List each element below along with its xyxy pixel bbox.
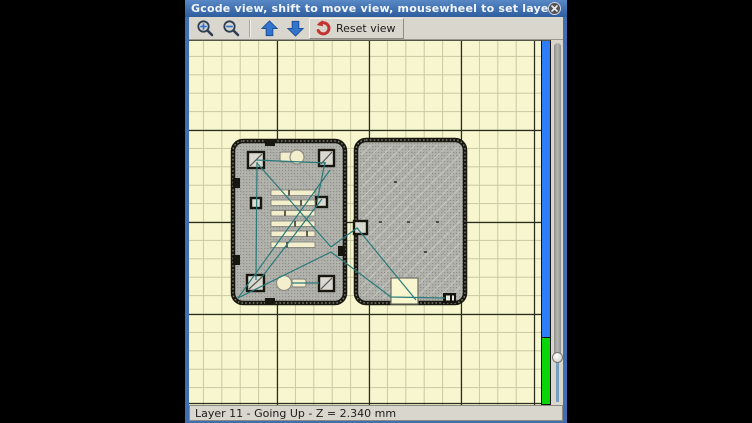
corner-hole xyxy=(319,150,334,166)
magnifier-plus-icon xyxy=(196,19,215,38)
blue-arrow-down-icon xyxy=(286,19,305,38)
layer-progress-done xyxy=(542,337,550,404)
gcode-viewer-window: Gcode view, shift to move view, mousewhe… xyxy=(185,0,567,423)
red-undo-arrow-icon xyxy=(314,19,332,37)
right-part xyxy=(354,140,465,304)
close-button[interactable] xyxy=(548,2,561,15)
close-icon xyxy=(550,4,559,13)
layer-progress-bar[interactable] xyxy=(541,40,551,405)
status-bar: Layer 11 - Going Up - Z = 2.340 mm xyxy=(189,405,563,421)
magnifier-minus-icon xyxy=(222,19,241,38)
zoom-in-button[interactable] xyxy=(193,18,217,39)
bottom-notch xyxy=(391,278,418,304)
gcode-canvas[interactable] xyxy=(189,40,541,405)
left-part xyxy=(233,139,345,305)
reset-view-label: Reset view xyxy=(336,22,396,35)
toolbar-separator xyxy=(249,20,251,37)
zoom-out-button[interactable] xyxy=(219,18,243,39)
layer-down-button[interactable] xyxy=(283,18,307,39)
blue-arrow-up-icon xyxy=(260,19,279,38)
slider-track-lower[interactable] xyxy=(556,358,559,402)
toolbar: Reset view xyxy=(189,17,563,40)
corner-hole xyxy=(319,276,334,291)
title-bar[interactable]: Gcode view, shift to move view, mousewhe… xyxy=(185,0,567,17)
status-text: Layer 11 - Going Up - Z = 2.340 mm xyxy=(195,407,396,420)
viewer-area xyxy=(189,40,563,405)
slider-track-upper[interactable] xyxy=(554,43,561,358)
slider-thumb[interactable] xyxy=(552,352,563,363)
reset-view-button[interactable]: Reset view xyxy=(309,18,404,39)
layer-slider[interactable] xyxy=(551,40,563,405)
layer-up-button[interactable] xyxy=(257,18,281,39)
window-title: Gcode view, shift to move view, mousewhe… xyxy=(191,2,548,15)
